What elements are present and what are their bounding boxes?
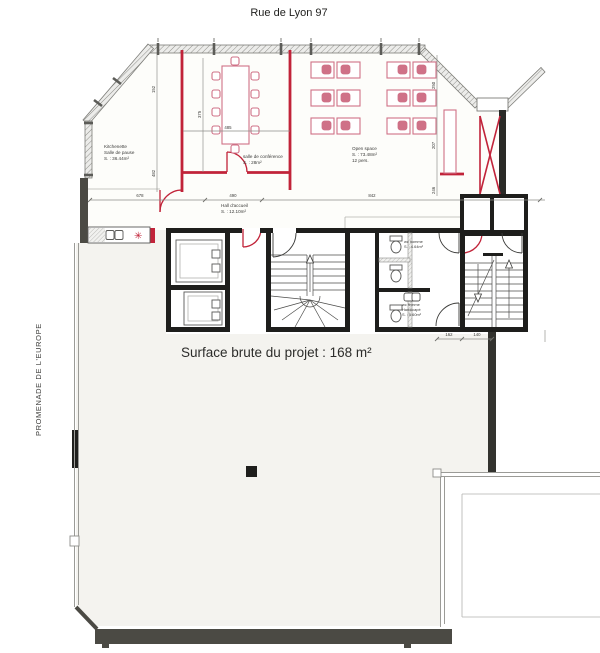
wc-partition xyxy=(379,258,410,262)
room-label-wc-homme: wc homme S. : 4.64m² xyxy=(404,239,424,249)
svg-text:S. : 5.60m²: S. : 5.60m² xyxy=(402,312,422,317)
svg-text:S. : 36.44m²: S. : 36.44m² xyxy=(104,156,129,161)
chair xyxy=(251,108,259,116)
toilet-icon xyxy=(390,265,402,282)
elevator-1 xyxy=(176,240,222,282)
chair xyxy=(251,72,259,80)
toilet-icon xyxy=(390,305,402,322)
terrace-outline xyxy=(462,494,600,617)
sink-icon xyxy=(115,231,123,240)
wall-notch-box xyxy=(70,536,79,546)
svg-text:Kitchenette: Kitchenette xyxy=(104,144,127,149)
conference-table xyxy=(222,66,249,144)
chair xyxy=(212,108,220,116)
dim-842: 842 xyxy=(368,193,376,198)
chair xyxy=(251,90,259,98)
chair xyxy=(322,93,331,102)
chair xyxy=(398,93,407,102)
chair xyxy=(398,121,407,130)
chair xyxy=(417,65,426,74)
svg-text:Hall d'accueil: Hall d'accueil xyxy=(221,203,248,208)
notch-sill xyxy=(477,98,508,111)
wall-left-dark xyxy=(80,178,88,243)
room-label-hall: Hall d'accueil S. : 12.10m² xyxy=(221,203,248,214)
kitchen-counter: ✳ xyxy=(88,227,150,243)
dim-678: 678 xyxy=(136,193,144,198)
svg-text:Salle de pause: Salle de pause xyxy=(104,150,135,155)
window-wall-notch-right xyxy=(504,68,545,109)
chair xyxy=(212,126,220,134)
chair xyxy=(341,93,350,102)
dim-152: 152 xyxy=(151,85,156,93)
wall-left-segment xyxy=(72,430,79,468)
chair xyxy=(341,65,350,74)
dim-162: 162 xyxy=(445,332,453,337)
dim-207: 207 xyxy=(431,141,436,149)
dim-246: 246 xyxy=(431,186,436,194)
dim-485: 485 xyxy=(224,125,232,130)
chair xyxy=(417,93,426,102)
elevator-2 xyxy=(184,292,222,325)
svg-text:S. : 28m²: S. : 28m² xyxy=(243,160,262,165)
chair xyxy=(212,90,220,98)
svg-text:S. : 12.10m²: S. : 12.10m² xyxy=(221,209,246,214)
window-wall-top xyxy=(150,45,425,53)
sink-icon xyxy=(106,231,114,240)
dim-482: 482 xyxy=(151,169,156,177)
chair xyxy=(417,121,426,130)
svg-text:12 pers.: 12 pers. xyxy=(352,158,369,163)
window-wall-left xyxy=(85,121,92,178)
chair xyxy=(212,72,220,80)
cooktop-icon: ✳ xyxy=(134,231,142,242)
chair xyxy=(322,65,331,74)
dim-140: 140 xyxy=(473,332,481,337)
dim-490: 490 xyxy=(229,193,237,198)
chair xyxy=(341,121,350,130)
top-wall-ticks xyxy=(158,38,419,42)
wall-notch-down xyxy=(499,110,506,196)
chair xyxy=(231,57,239,65)
dim-250: 250 xyxy=(431,81,436,89)
red-jamb xyxy=(150,228,155,243)
wall-below-stair xyxy=(488,332,496,473)
wall-joint-box xyxy=(433,469,441,477)
street-label: PROMENADE DE L'EUROPE xyxy=(34,323,43,436)
chair xyxy=(231,145,239,153)
chair xyxy=(322,121,331,130)
svg-text:Open space: Open space xyxy=(352,146,377,151)
svg-text:S. : 73.48m²: S. : 73.48m² xyxy=(352,152,377,157)
svg-text:salle de conférence: salle de conférence xyxy=(243,154,283,159)
floorplan-drawing: ✳ xyxy=(0,0,600,653)
svg-text:S. : 4.64m²: S. : 4.64m² xyxy=(404,244,424,249)
column xyxy=(246,466,257,477)
chair xyxy=(251,126,259,134)
toilet-icon xyxy=(390,236,402,253)
room-label-wc-femme: wc femme Handicapé S. : 5.60m² xyxy=(402,302,422,317)
wall-bottom xyxy=(95,629,452,644)
wall-bottom-foot xyxy=(404,644,411,648)
page-title: Rue de Lyon 97 xyxy=(250,7,327,19)
sink-icon xyxy=(412,293,420,301)
dim-375: 375 xyxy=(197,110,202,118)
chair xyxy=(398,65,407,74)
wall-bottom-foot xyxy=(102,644,109,648)
cabinet xyxy=(444,110,456,173)
surface-label: Surface brute du projet : 168 m² xyxy=(181,345,372,360)
